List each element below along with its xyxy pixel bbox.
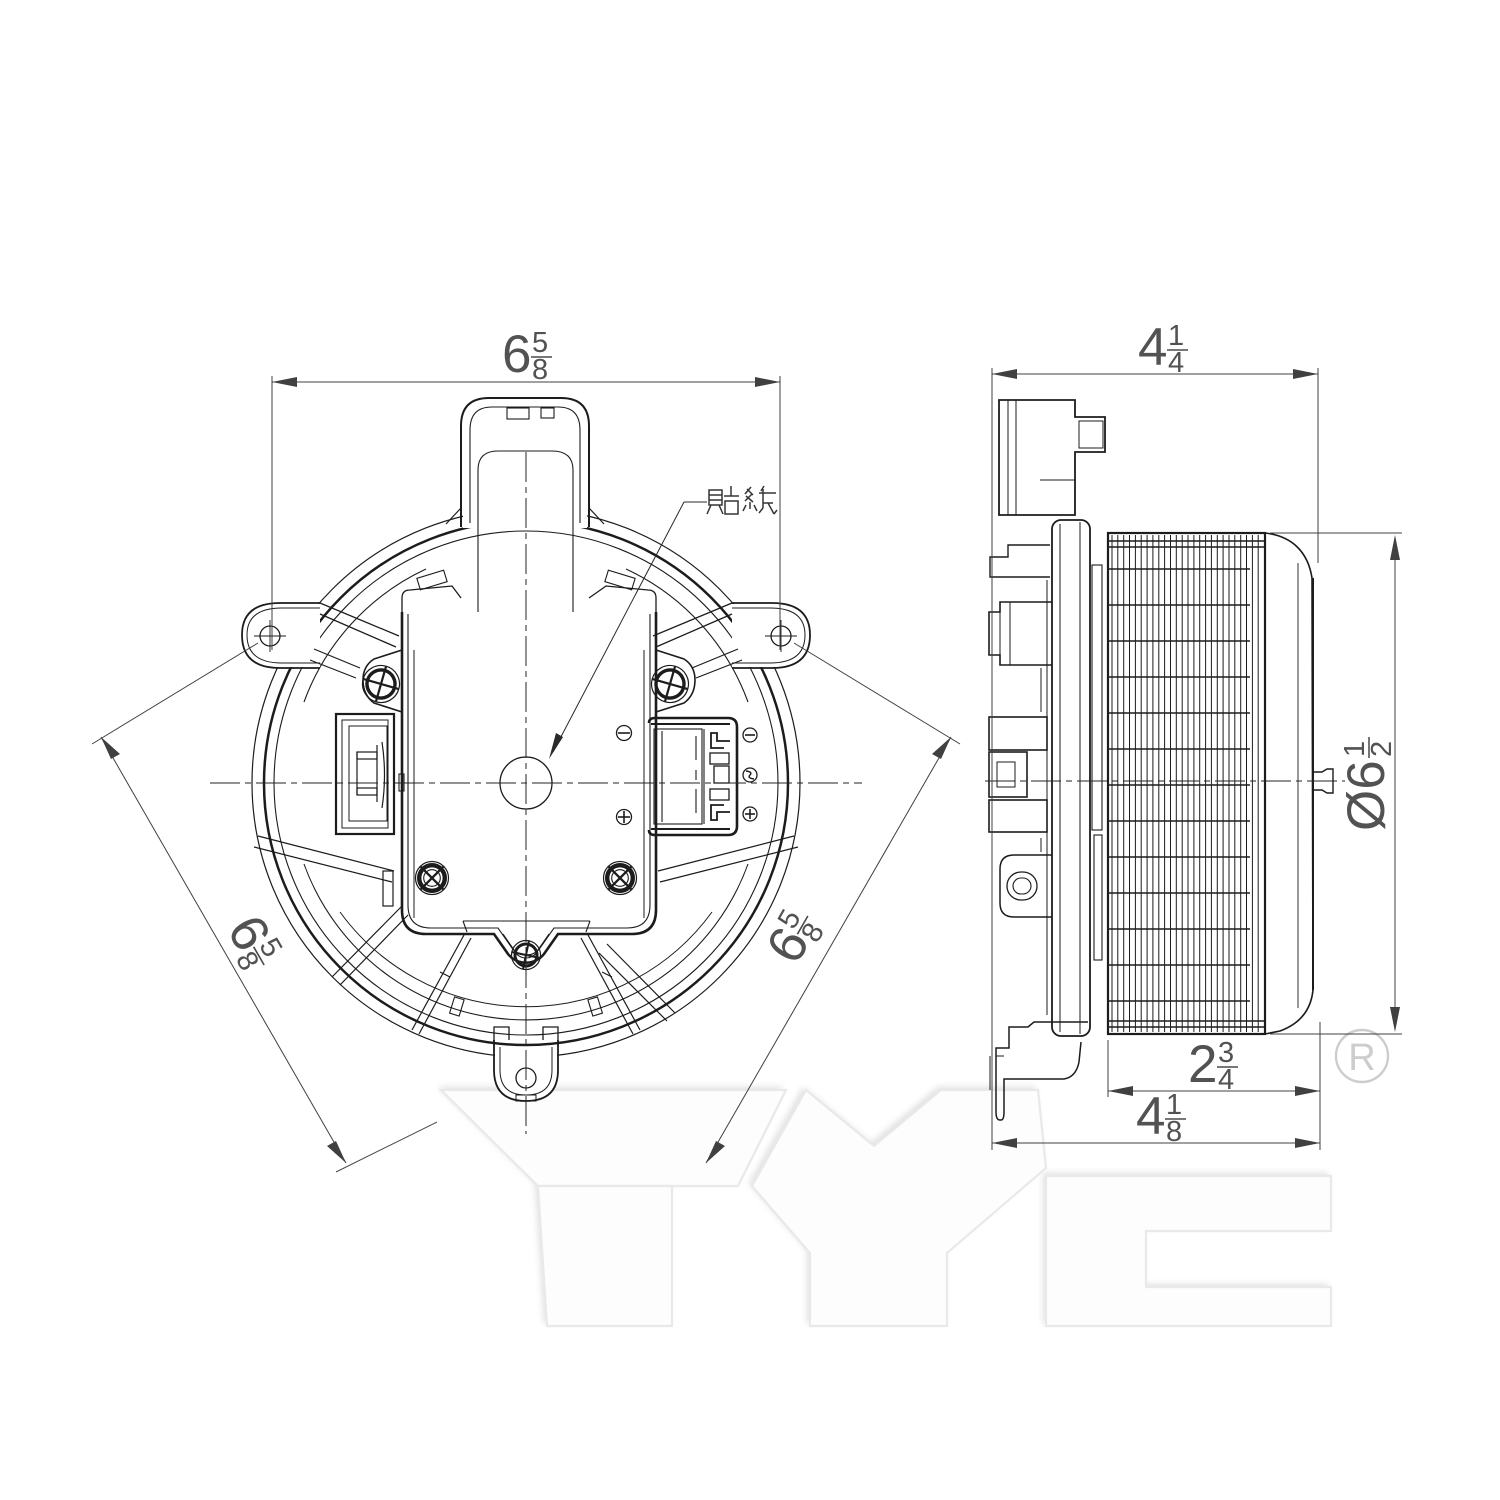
svg-text:Ø6: Ø6 bbox=[1337, 760, 1396, 831]
svg-text:4: 4 bbox=[1168, 347, 1184, 379]
svg-text:2: 2 bbox=[1366, 741, 1398, 757]
svg-text:8: 8 bbox=[1166, 1116, 1182, 1148]
svg-text:4: 4 bbox=[1218, 1064, 1234, 1096]
svg-text:6: 6 bbox=[502, 325, 531, 384]
svg-text:R: R bbox=[1348, 1037, 1375, 1079]
svg-text:4: 4 bbox=[1138, 318, 1167, 377]
svg-text:2: 2 bbox=[1188, 1035, 1217, 1094]
svg-text:4: 4 bbox=[1136, 1087, 1165, 1146]
svg-text:8: 8 bbox=[532, 354, 548, 386]
